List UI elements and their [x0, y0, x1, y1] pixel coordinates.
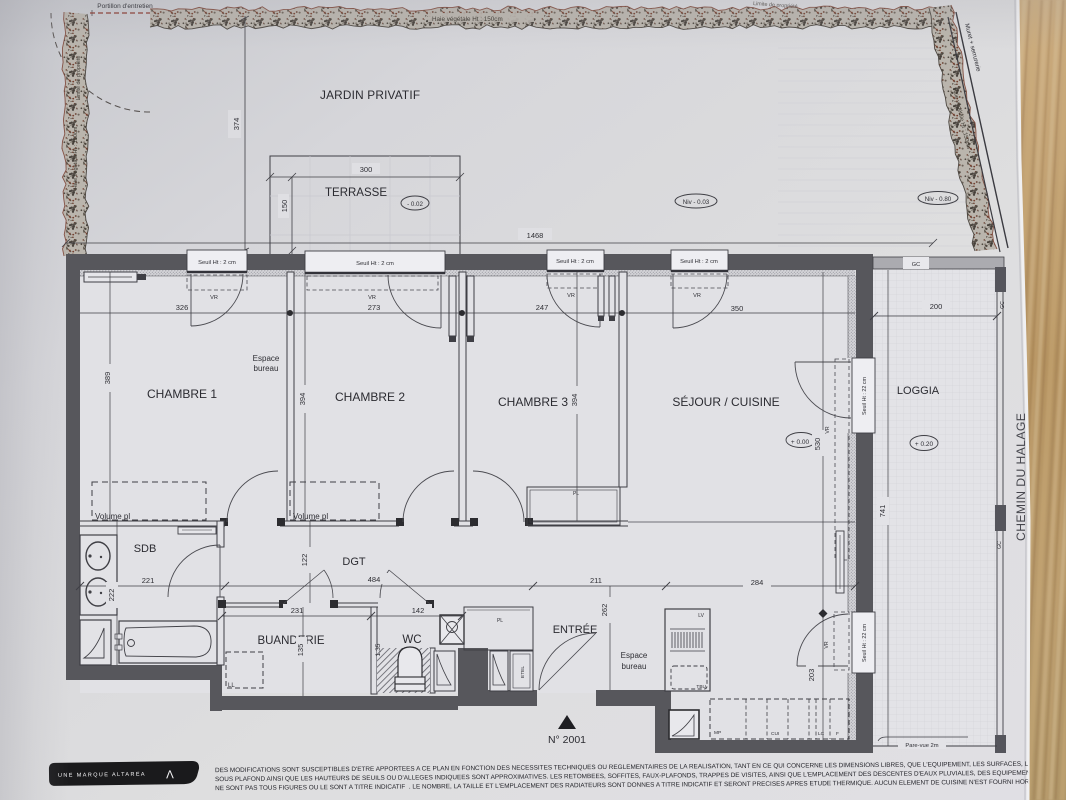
svg-text:1468: 1468 — [527, 231, 544, 240]
svg-text:N° 2001: N° 2001 — [548, 734, 586, 746]
svg-text:VR: VR — [368, 295, 376, 301]
svg-text:222: 222 — [107, 589, 116, 602]
svg-text:326: 326 — [176, 303, 189, 312]
svg-text:374: 374 — [232, 118, 241, 131]
svg-text:GC: GC — [1000, 301, 1006, 309]
svg-text:389: 389 — [103, 372, 112, 385]
svg-text:VR: VR — [210, 295, 218, 301]
svg-text:Seuil Ht : 22 cm: Seuil Ht : 22 cm — [862, 376, 868, 415]
svg-text:Λ: Λ — [166, 769, 174, 781]
svg-text:CHAMBRE 2: CHAMBRE 2 — [335, 390, 405, 404]
svg-text:741: 741 — [878, 505, 887, 518]
svg-text:Niv - 0.03: Niv - 0.03 — [683, 199, 710, 206]
svg-text:VR: VR — [825, 426, 831, 433]
svg-text:1,35: 1,35 — [375, 643, 382, 656]
svg-text:WC: WC — [402, 634, 421, 646]
svg-text:ETEL: ETEL — [520, 666, 526, 678]
svg-text:135: 135 — [296, 644, 305, 657]
svg-text:Seuil Ht : 2 cm: Seuil Ht : 2 cm — [198, 260, 236, 266]
svg-text:247: 247 — [536, 303, 549, 312]
svg-text:221: 221 — [142, 576, 155, 585]
svg-text:Pare-vue 2m: Pare-vue 2m — [905, 743, 938, 749]
svg-text:SDB: SDB — [134, 543, 157, 555]
svg-text:UNE MARQUE ALTAREA: UNE MARQUE ALTAREA — [58, 772, 146, 779]
svg-text:Haie végétale Ht : 150cm: Haie végétale Ht : 150cm — [73, 126, 79, 189]
svg-text:TERRASSE: TERRASSE — [325, 187, 387, 199]
svg-text:394: 394 — [570, 394, 579, 407]
svg-text:Seuil Ht : 2 cm: Seuil Ht : 2 cm — [556, 259, 594, 265]
svg-text:LC: LC — [818, 731, 825, 737]
svg-text:284: 284 — [751, 578, 764, 587]
svg-text:150: 150 — [280, 200, 289, 213]
svg-text:200: 200 — [930, 302, 943, 311]
svg-text:Seuil Ht : 22 cm: Seuil Ht : 22 cm — [862, 623, 868, 662]
svg-text:VR: VR — [824, 641, 830, 648]
svg-text:PL: PL — [573, 491, 579, 497]
svg-text:350: 350 — [731, 304, 744, 313]
svg-text:484: 484 — [368, 575, 381, 584]
svg-text:- 0.02: - 0.02 — [407, 201, 423, 208]
svg-text:203: 203 — [807, 669, 816, 682]
svg-text:Volume pl: Volume pl — [95, 512, 130, 521]
svg-text:Seuil Ht : 2 cm: Seuil Ht : 2 cm — [680, 259, 718, 265]
svg-text:CHAMBRE 3: CHAMBRE 3 — [498, 395, 568, 409]
svg-text:262: 262 — [600, 604, 609, 617]
svg-text:CHAMBRE 1: CHAMBRE 1 — [147, 387, 217, 401]
svg-text:JARDIN PRIVATIF: JARDIN PRIVATIF — [320, 88, 420, 102]
svg-text:GC: GC — [997, 541, 1003, 549]
svg-text:Volume pl: Volume pl — [293, 512, 328, 521]
svg-text:bureau: bureau — [254, 364, 279, 373]
svg-text:Seuil Ht : 2 cm: Seuil Ht : 2 cm — [356, 261, 394, 267]
svg-text:CUI: CUI — [771, 731, 779, 737]
svg-text:DGT: DGT — [342, 556, 366, 568]
svg-text:SÉJOUR / CUISINE: SÉJOUR / CUISINE — [672, 394, 779, 409]
svg-text:273: 273 — [368, 303, 381, 312]
svg-text:+ 0.20: + 0.20 — [915, 441, 934, 448]
svg-text:Niv - 0.80: Niv - 0.80 — [925, 196, 952, 203]
svg-text:LOGGIA: LOGGIA — [897, 385, 940, 397]
svg-text:CHEMIN DU HALAGE: CHEMIN DU HALAGE — [1014, 413, 1028, 541]
svg-text:Espace: Espace — [253, 354, 280, 363]
svg-text:TBU: TBU — [696, 684, 706, 690]
svg-text:GC: GC — [912, 262, 920, 268]
svg-text:300: 300 — [360, 165, 373, 174]
svg-text:142: 142 — [412, 606, 425, 615]
svg-text:LV: LV — [698, 613, 704, 619]
svg-text:394: 394 — [298, 393, 307, 406]
svg-text:211: 211 — [590, 576, 602, 585]
svg-text:PL: PL — [497, 618, 503, 624]
svg-text:VR: VR — [693, 293, 701, 299]
svg-text:Limite de propriété: Limite de propriété — [76, 56, 82, 101]
svg-text:122: 122 — [300, 554, 309, 567]
svg-text:+ 0.00: + 0.00 — [791, 439, 810, 446]
svg-text:F: F — [836, 731, 839, 737]
svg-text:Espace: Espace — [621, 651, 648, 660]
svg-text:ENTRÉE: ENTRÉE — [553, 623, 598, 636]
svg-text:530: 530 — [813, 438, 822, 451]
svg-text:bureau: bureau — [622, 662, 647, 671]
svg-text:BUANDERIE: BUANDERIE — [257, 635, 324, 647]
svg-text:231: 231 — [291, 606, 304, 615]
svg-text:MP: MP — [714, 730, 721, 736]
svg-text:LL: LL — [228, 683, 235, 689]
svg-text:VR: VR — [567, 293, 575, 299]
